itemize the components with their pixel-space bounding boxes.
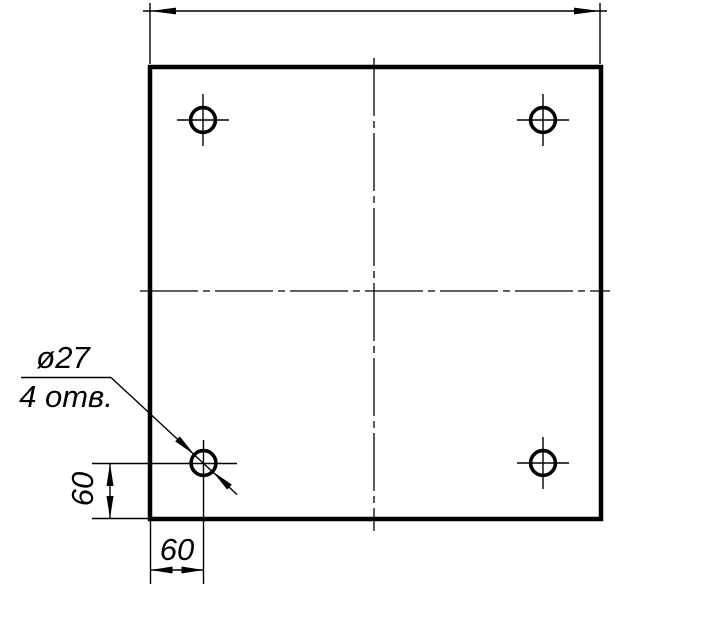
arrowhead-upper xyxy=(175,436,194,454)
hole-bottom-right xyxy=(517,437,569,489)
hole-callout: ø27 4 отв. xyxy=(19,340,237,495)
hole-top-right xyxy=(517,94,569,146)
hole-diameter-label: ø27 xyxy=(36,340,91,375)
arrowhead-right xyxy=(182,567,204,574)
arrowhead-lower xyxy=(213,471,232,489)
plate-outline xyxy=(150,67,601,519)
vertical-offset-dimension: 60 xyxy=(65,464,150,519)
drawing-canvas: ø27 4 отв. 60 60 xyxy=(0,0,713,631)
drawing-sheet: ø27 4 отв. 60 60 xyxy=(0,0,713,631)
hole-count-label: 4 отв. xyxy=(19,379,113,414)
arrowhead-up xyxy=(107,464,114,487)
arrowhead-left xyxy=(151,567,173,574)
vertical-offset-label: 60 xyxy=(65,472,100,506)
arrowhead-left xyxy=(150,8,176,15)
horizontal-offset-dimension: 60 xyxy=(151,521,204,584)
arrowhead-down xyxy=(107,496,114,519)
hole-top-left xyxy=(177,94,229,146)
width-dimension xyxy=(143,3,607,64)
arrowhead-right xyxy=(574,8,600,15)
horizontal-offset-label: 60 xyxy=(160,532,194,567)
